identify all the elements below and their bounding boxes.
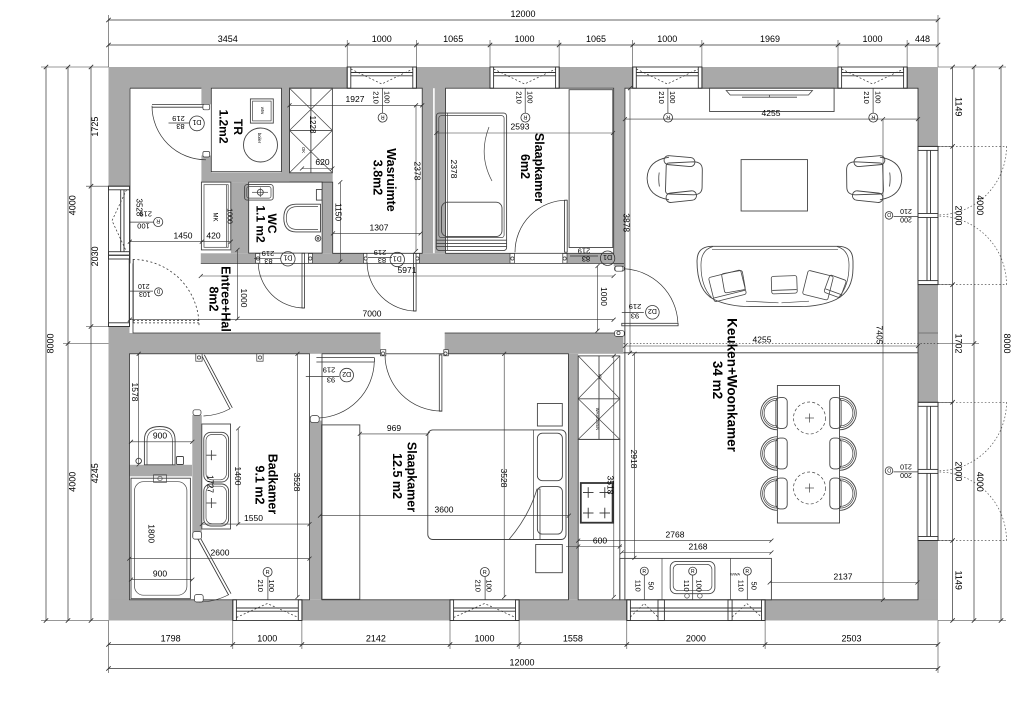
svg-text:D1: D1 bbox=[603, 253, 612, 260]
svg-text:WWA: WWA bbox=[730, 572, 740, 577]
svg-text:R: R bbox=[483, 570, 487, 576]
svg-text:Slaapkamer: Slaapkamer bbox=[405, 442, 419, 512]
svg-text:1150: 1150 bbox=[334, 203, 344, 222]
svg-text:1065: 1065 bbox=[586, 34, 606, 44]
svg-text:2593: 2593 bbox=[511, 122, 530, 132]
svg-text:boiler: boiler bbox=[257, 133, 262, 144]
svg-text:83: 83 bbox=[378, 256, 386, 265]
svg-text:D1: D1 bbox=[192, 118, 201, 125]
svg-text:83: 83 bbox=[176, 122, 184, 131]
svg-text:3528: 3528 bbox=[292, 473, 302, 492]
svg-text:219: 219 bbox=[374, 248, 387, 257]
svg-text:R: R bbox=[745, 569, 749, 575]
svg-text:100: 100 bbox=[873, 91, 882, 104]
svg-text:4000: 4000 bbox=[68, 195, 78, 215]
svg-text:R: R bbox=[666, 113, 670, 119]
svg-text:1.1 m2: 1.1 m2 bbox=[254, 205, 268, 243]
svg-text:Keuken+Woonkamer: Keuken+Woonkamer bbox=[725, 318, 740, 452]
svg-text:219: 219 bbox=[172, 114, 185, 123]
svg-text:93: 93 bbox=[631, 311, 639, 320]
svg-text:2137: 2137 bbox=[834, 571, 853, 581]
svg-text:1228: 1228 bbox=[308, 116, 317, 134]
svg-text:Wasruimte: Wasruimte bbox=[384, 148, 398, 211]
svg-text:900: 900 bbox=[153, 430, 167, 440]
svg-text:3518: 3518 bbox=[606, 476, 616, 495]
svg-text:8m2: 8m2 bbox=[207, 286, 221, 311]
svg-text:100: 100 bbox=[668, 91, 677, 104]
svg-text:1969: 1969 bbox=[760, 34, 780, 44]
svg-text:4245: 4245 bbox=[90, 463, 100, 483]
svg-text:83: 83 bbox=[264, 257, 272, 266]
svg-text:210: 210 bbox=[256, 579, 265, 592]
svg-text:34 m2: 34 m2 bbox=[710, 361, 725, 399]
svg-text:210: 210 bbox=[657, 91, 666, 104]
svg-text:3528: 3528 bbox=[499, 469, 509, 488]
svg-text:210: 210 bbox=[900, 463, 912, 470]
svg-text:448: 448 bbox=[915, 34, 930, 44]
svg-text:1550: 1550 bbox=[244, 513, 263, 523]
svg-text:600: 600 bbox=[593, 535, 607, 545]
svg-text:103: 103 bbox=[139, 290, 151, 297]
svg-text:WAS/OVEN: WAS/OVEN bbox=[595, 408, 600, 430]
svg-text:1149: 1149 bbox=[954, 97, 964, 116]
svg-text:110: 110 bbox=[737, 580, 746, 592]
svg-text:D: D bbox=[156, 288, 160, 294]
svg-text:Slaapkamer: Slaapkamer bbox=[532, 133, 546, 203]
svg-text:12000: 12000 bbox=[509, 658, 534, 668]
svg-text:50: 50 bbox=[646, 582, 655, 590]
svg-text:1000: 1000 bbox=[372, 34, 392, 44]
svg-text:1065: 1065 bbox=[443, 34, 463, 44]
svg-text:R: R bbox=[156, 218, 160, 224]
svg-text:OK: OK bbox=[301, 147, 306, 153]
svg-text:8000: 8000 bbox=[1002, 333, 1012, 353]
svg-text:1000: 1000 bbox=[257, 634, 277, 644]
svg-text:219: 219 bbox=[578, 247, 591, 256]
svg-text:100: 100 bbox=[267, 579, 276, 592]
svg-text:200: 200 bbox=[900, 471, 912, 478]
svg-text:219: 219 bbox=[629, 302, 642, 311]
svg-text:219: 219 bbox=[139, 210, 152, 219]
svg-text:3454: 3454 bbox=[218, 34, 238, 44]
svg-text:1727: 1727 bbox=[206, 475, 215, 493]
svg-text:2000: 2000 bbox=[954, 461, 964, 481]
svg-text:2503: 2503 bbox=[841, 634, 861, 644]
svg-text:2768: 2768 bbox=[666, 530, 685, 540]
svg-text:2600: 2600 bbox=[211, 548, 230, 558]
svg-text:R: R bbox=[871, 113, 875, 119]
svg-text:R: R bbox=[266, 570, 270, 576]
svg-text:Badkamer: Badkamer bbox=[266, 454, 280, 515]
svg-text:210: 210 bbox=[514, 91, 523, 104]
svg-text:TR: TR bbox=[231, 119, 245, 135]
svg-text:210: 210 bbox=[138, 282, 150, 289]
svg-text:1000: 1000 bbox=[599, 287, 609, 306]
svg-text:D2: D2 bbox=[342, 370, 351, 377]
svg-text:620: 620 bbox=[315, 157, 329, 167]
svg-text:200: 200 bbox=[900, 216, 912, 223]
svg-text:1149: 1149 bbox=[954, 571, 964, 590]
svg-text:100: 100 bbox=[526, 91, 535, 104]
svg-text:1.2m2: 1.2m2 bbox=[217, 109, 231, 143]
svg-text:R: R bbox=[642, 569, 646, 575]
svg-text:7405: 7405 bbox=[875, 326, 885, 345]
svg-text:1000: 1000 bbox=[657, 34, 677, 44]
svg-text:110: 110 bbox=[682, 580, 691, 592]
svg-text:D: D bbox=[887, 467, 891, 473]
svg-text:4255: 4255 bbox=[753, 335, 772, 345]
svg-text:6m2: 6m2 bbox=[518, 154, 532, 179]
svg-text:2918: 2918 bbox=[629, 450, 639, 469]
svg-text:1798: 1798 bbox=[161, 634, 181, 644]
svg-text:D1: D1 bbox=[393, 254, 402, 261]
svg-text:210: 210 bbox=[372, 91, 381, 104]
svg-text:1578: 1578 bbox=[130, 383, 140, 402]
svg-text:1000: 1000 bbox=[239, 289, 249, 308]
svg-text:1000: 1000 bbox=[474, 634, 494, 644]
svg-text:100: 100 bbox=[484, 579, 493, 592]
svg-text:3.8m2: 3.8m2 bbox=[371, 160, 385, 195]
svg-text:1450: 1450 bbox=[174, 231, 193, 241]
svg-text:210: 210 bbox=[862, 91, 871, 104]
svg-text:2378: 2378 bbox=[449, 160, 459, 179]
svg-text:1307: 1307 bbox=[370, 223, 389, 233]
svg-text:100: 100 bbox=[695, 579, 704, 592]
svg-text:2000: 2000 bbox=[686, 634, 706, 644]
svg-text:2168: 2168 bbox=[689, 542, 708, 552]
svg-text:110: 110 bbox=[634, 580, 643, 592]
svg-text:2378: 2378 bbox=[413, 162, 423, 181]
svg-text:1927: 1927 bbox=[346, 94, 365, 104]
svg-text:2030: 2030 bbox=[90, 246, 100, 266]
svg-text:210: 210 bbox=[473, 579, 482, 592]
svg-text:50: 50 bbox=[749, 582, 758, 590]
svg-text:1000: 1000 bbox=[226, 208, 233, 224]
svg-text:900: 900 bbox=[153, 568, 167, 578]
svg-text:12000: 12000 bbox=[510, 9, 535, 19]
svg-text:D2: D2 bbox=[648, 307, 657, 314]
svg-text:7000: 7000 bbox=[363, 309, 382, 319]
svg-text:4000: 4000 bbox=[68, 472, 78, 492]
svg-text:8000: 8000 bbox=[46, 333, 56, 353]
svg-text:1000: 1000 bbox=[514, 34, 534, 44]
svg-text:R: R bbox=[523, 113, 527, 119]
svg-text:MK: MK bbox=[212, 213, 218, 222]
svg-text:D1: D1 bbox=[283, 254, 292, 261]
svg-text:219: 219 bbox=[323, 365, 336, 374]
svg-text:wtw: wtw bbox=[260, 107, 265, 115]
svg-text:210: 210 bbox=[900, 207, 912, 214]
svg-text:KK: KK bbox=[598, 374, 603, 380]
svg-text:969: 969 bbox=[387, 423, 401, 433]
svg-text:93: 93 bbox=[327, 376, 335, 385]
svg-text:2142: 2142 bbox=[366, 634, 386, 644]
svg-text:9.1 m2: 9.1 m2 bbox=[253, 466, 267, 505]
svg-text:D: D bbox=[887, 211, 891, 217]
svg-text:4000: 4000 bbox=[975, 195, 985, 215]
svg-text:1558: 1558 bbox=[563, 634, 583, 644]
svg-text:R: R bbox=[381, 113, 385, 119]
svg-text:12.5 m2: 12.5 m2 bbox=[390, 453, 404, 499]
svg-text:4255: 4255 bbox=[762, 108, 781, 118]
svg-text:1800: 1800 bbox=[146, 524, 156, 543]
svg-text:3600: 3600 bbox=[435, 504, 454, 514]
svg-text:1702: 1702 bbox=[954, 333, 964, 353]
svg-text:3878: 3878 bbox=[622, 213, 632, 232]
svg-text:2000: 2000 bbox=[954, 205, 964, 225]
svg-text:100: 100 bbox=[137, 222, 150, 231]
svg-text:100: 100 bbox=[383, 91, 392, 104]
svg-text:4000: 4000 bbox=[975, 472, 985, 492]
svg-text:219: 219 bbox=[262, 249, 275, 258]
svg-text:83: 83 bbox=[582, 255, 590, 264]
svg-text:R: R bbox=[691, 569, 695, 575]
svg-text:1725: 1725 bbox=[90, 117, 100, 137]
svg-text:420: 420 bbox=[206, 231, 220, 241]
svg-text:1000: 1000 bbox=[862, 34, 882, 44]
svg-text:1400: 1400 bbox=[233, 467, 243, 486]
